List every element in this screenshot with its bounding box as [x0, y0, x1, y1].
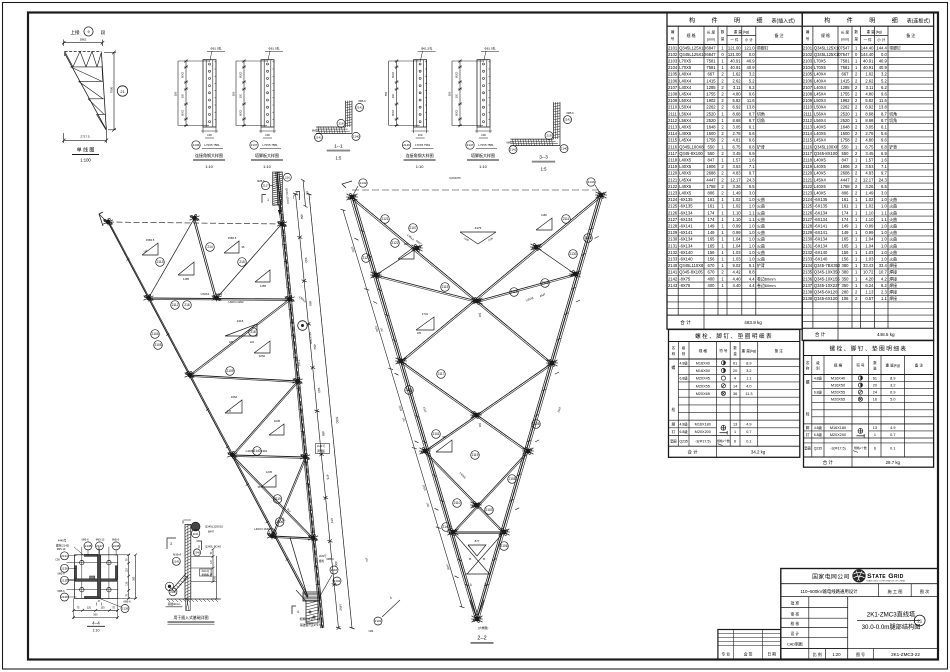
svg-text:3.05: 3.05: [865, 125, 874, 130]
svg-text:2102: 2102: [803, 52, 813, 57]
svg-text:1.6: 1.6: [881, 158, 887, 163]
svg-text:-6X135: -6X135: [679, 204, 693, 209]
svg-text:-6X141: -6X141: [679, 224, 693, 229]
svg-text:218: 218: [338, 122, 343, 126]
svg-text:550: 550: [842, 151, 850, 156]
svg-text:2117: 2117: [668, 151, 678, 156]
svg-text:M20X55: M20X55: [831, 391, 845, 395]
svg-text:847: 847: [708, 158, 716, 163]
svg-text:1.0: 1.0: [881, 230, 887, 235]
svg-text:100: 100: [392, 93, 395, 98]
svg-text:2105: 2105: [803, 72, 813, 77]
svg-text:国家电网公司: 国家电网公司: [812, 572, 850, 580]
svg-text:2126: 2126: [803, 210, 813, 215]
svg-text:2141: 2141: [173, 559, 180, 563]
svg-text:专 业: 专 业: [721, 652, 730, 657]
svg-text:2117: 2117: [262, 184, 269, 188]
svg-text:2101: 2101: [803, 45, 813, 50]
svg-text:1.1: 1.1: [749, 217, 755, 222]
svg-text:6.1: 6.1: [881, 125, 887, 130]
svg-text:2111: 2111: [668, 111, 677, 116]
svg-text:合 计: 合 计: [823, 459, 834, 466]
svg-text:设 计: 设 计: [790, 631, 799, 636]
svg-text:-6X141: -6X141: [814, 224, 828, 229]
svg-text:2117: 2117: [438, 372, 445, 376]
svg-text:1:5: 1:5: [335, 156, 341, 161]
svg-text:火曲: 火曲: [889, 257, 897, 262]
svg-text:2132: 2132: [668, 250, 678, 255]
svg-text:规 格: 规 格: [821, 32, 830, 38]
svg-text:4375: 4375: [475, 226, 482, 230]
svg-text:877: 877: [475, 539, 480, 543]
svg-text:-3(Φ17.5): -3(Φ17.5): [695, 439, 710, 443]
svg-text:2118: 2118: [803, 158, 813, 163]
svg-text:8.68: 8.68: [733, 111, 742, 116]
svg-text:4.40: 4.40: [733, 283, 742, 288]
svg-text:Q345L125X10: Q345L125X10: [679, 45, 706, 50]
svg-text:L45X4: L45X4: [814, 177, 827, 182]
svg-text:1.03: 1.03: [733, 250, 742, 255]
svg-text:8.8: 8.8: [749, 270, 755, 275]
svg-text:用于插入式基础详图: 用于插入式基础详图: [173, 615, 208, 620]
svg-text:M16X50: M16X50: [696, 369, 710, 373]
svg-text:161: 161: [708, 197, 716, 202]
svg-text:2113: 2113: [668, 125, 678, 130]
svg-text:1758: 1758: [706, 138, 716, 143]
svg-text:-6X134: -6X134: [679, 217, 693, 222]
svg-text:Q235: Q235: [814, 446, 822, 450]
svg-text:钉: 钉: [672, 429, 676, 434]
svg-text:4.80: 4.80: [865, 92, 874, 97]
svg-text:2262: 2262: [706, 105, 716, 110]
svg-text:螺栓、脚钉、垫圈明细表: 螺栓、脚钉、垫圈明细表: [829, 344, 907, 352]
svg-text:2142: 2142: [170, 591, 176, 594]
svg-text:180: 180: [404, 242, 409, 246]
svg-text:火曲: 火曲: [889, 204, 897, 209]
svg-text:2126: 2126: [668, 210, 678, 215]
svg-text:1.0: 1.0: [881, 224, 887, 229]
svg-text:6.9: 6.9: [890, 391, 895, 395]
svg-text:M20X200: M20X200: [695, 430, 711, 434]
svg-text:450: 450: [313, 344, 318, 350]
svg-text:2122: 2122: [668, 184, 678, 189]
svg-text:2104: 2104: [151, 332, 158, 336]
svg-text:4.83: 4.83: [865, 171, 874, 176]
svg-text:规 格: 规 格: [834, 363, 843, 368]
svg-text:焊接: 焊接: [889, 290, 897, 295]
svg-text:2120: 2120: [803, 171, 813, 176]
svg-text:切角: 切角: [889, 111, 897, 116]
svg-text:60X3: 60X3: [182, 109, 185, 115]
svg-text:L40X4: L40X4: [814, 78, 827, 83]
svg-text:108: 108: [842, 296, 850, 301]
svg-text:2--2: 2--2: [477, 636, 486, 642]
svg-text:L40X4: L40X4: [814, 85, 827, 90]
svg-text:550: 550: [174, 91, 178, 96]
svg-text:6M5-6: 6M5-6: [506, 141, 514, 145]
svg-text:2140: 2140: [353, 135, 360, 139]
svg-text:1.1: 1.1: [749, 210, 755, 215]
svg-text:火曲: 火曲: [889, 210, 897, 215]
svg-text:130: 130: [100, 606, 105, 609]
svg-text:Q345-10X155: Q345-10X155: [814, 276, 840, 281]
svg-text:9.7: 9.7: [881, 171, 887, 176]
svg-text:L45X4: L45X4: [814, 138, 827, 143]
svg-text:2101: 2101: [432, 432, 439, 436]
svg-text:4445号: 4445号: [58, 539, 67, 543]
svg-text:6847: 6847: [706, 52, 716, 57]
svg-text:火曲: 火曲: [757, 204, 765, 209]
svg-text:20: 20: [873, 384, 877, 388]
svg-text:L50X4: L50X4: [814, 105, 827, 110]
svg-text:1755: 1755: [840, 92, 850, 97]
svg-text:1648: 1648: [840, 125, 850, 130]
svg-text:8.68: 8.68: [733, 118, 742, 123]
svg-text:规格x个数: 规格x个数: [854, 446, 867, 450]
svg-text:级: 级: [816, 360, 820, 365]
svg-text:6847: 6847: [208, 530, 215, 534]
svg-text:2K1-ZMC3直线塔: 2K1-ZMC3直线塔: [867, 611, 916, 619]
svg-text:667: 667: [842, 72, 850, 77]
svg-text:4.8级: 4.8级: [814, 376, 823, 381]
svg-text:2133: 2133: [803, 257, 813, 262]
svg-text:13.8: 13.8: [747, 105, 756, 110]
svg-text:2112: 2112: [668, 118, 678, 123]
svg-text:2127: 2127: [803, 217, 813, 222]
svg-text:4.2: 4.2: [881, 276, 887, 281]
svg-text:(mm): (mm): [707, 38, 715, 42]
svg-text:2143: 2143: [588, 180, 595, 184]
svg-text:2105: 2105: [154, 343, 161, 347]
svg-text:12.17: 12.17: [730, 177, 741, 182]
svg-text:号: 号: [806, 36, 810, 41]
svg-text:5.82: 5.82: [865, 98, 874, 103]
svg-text:2.78: 2.78: [733, 131, 742, 136]
svg-text:6.92: 6.92: [733, 105, 742, 110]
svg-text:1:20: 1:20: [832, 652, 841, 657]
svg-text:6.2: 6.2: [749, 85, 755, 90]
svg-text:225: 225: [417, 332, 422, 335]
svg-text:24.3: 24.3: [879, 177, 888, 182]
svg-text:3862: 3862: [80, 38, 87, 42]
svg-text:2147: 2147: [467, 143, 474, 147]
svg-text:900: 900: [304, 257, 309, 263]
svg-text:编: 编: [806, 29, 810, 34]
svg-text:2112: 2112: [803, 118, 813, 123]
svg-text:6M5-10: 6M5-10: [96, 539, 105, 542]
svg-text:2119: 2119: [274, 497, 281, 501]
svg-text:2140: 2140: [561, 147, 568, 151]
svg-text:2137: 2137: [251, 143, 258, 147]
svg-text:备 注: 备 注: [775, 348, 784, 353]
svg-text:550: 550: [842, 144, 850, 149]
svg-text:数: 数: [854, 29, 858, 34]
svg-text:L45X4: L45X4: [679, 92, 692, 97]
svg-text:448.5 kg: 448.5 kg: [877, 332, 895, 337]
svg-text:100: 100: [207, 133, 212, 137]
svg-text:9: 9: [87, 30, 89, 34]
svg-text:1.0: 1.0: [881, 237, 887, 242]
svg-text:8.7: 8.7: [749, 118, 755, 123]
svg-text:2132: 2132: [803, 250, 813, 255]
svg-text:4.80: 4.80: [865, 138, 874, 143]
svg-text:6.5: 6.5: [749, 184, 755, 189]
svg-text:9.02: 9.02: [733, 263, 742, 268]
svg-text:149: 149: [842, 230, 850, 235]
svg-text:M20X45: M20X45: [696, 377, 710, 381]
svg-text:2111: 2111: [803, 111, 812, 116]
svg-text:165: 165: [842, 243, 850, 248]
svg-text:6.2: 6.2: [881, 283, 887, 288]
svg-text:224: 224: [250, 341, 255, 344]
svg-text:名: 名: [806, 360, 809, 365]
svg-text:6M5-6: 6M5-6: [81, 539, 89, 542]
svg-text:300: 300: [132, 576, 135, 581]
svg-text:Q345L125X10: Q345L125X10: [205, 525, 223, 529]
svg-text:8.9: 8.9: [746, 361, 751, 365]
svg-text:1.0: 1.0: [749, 224, 755, 229]
svg-text:1.04: 1.04: [865, 243, 874, 248]
svg-text:6M5-6: 6M5-6: [312, 128, 320, 132]
svg-text:6.9: 6.9: [881, 151, 887, 156]
svg-text:7547: 7547: [840, 45, 850, 50]
svg-text:Q345-8X105: Q345-8X105: [679, 270, 703, 275]
svg-text:100: 100: [240, 93, 243, 98]
svg-text:备 注: 备 注: [774, 32, 783, 38]
svg-text:1:10: 1:10: [205, 164, 214, 169]
svg-text:2136: 2136: [122, 607, 129, 611]
svg-text:400: 400: [708, 283, 716, 288]
svg-text:21: 21: [120, 90, 124, 94]
svg-text:2101: 2101: [193, 532, 199, 536]
svg-text:火曲: 火曲: [757, 224, 765, 229]
svg-text:螺栓: 螺栓: [319, 559, 325, 563]
svg-text:2128: 2128: [803, 224, 813, 229]
svg-text:Q345L125X10: Q345L125X10: [814, 45, 841, 50]
svg-text:2110: 2110: [668, 105, 678, 110]
svg-text:10.72: 10.72: [863, 270, 874, 275]
svg-text:合 计: 合 计: [687, 449, 698, 456]
svg-text:473: 473: [330, 518, 335, 524]
svg-text:螺栓(2145): 螺栓(2145): [56, 544, 69, 548]
svg-text:1.02: 1.02: [865, 204, 874, 209]
svg-text:2141: 2141: [564, 118, 571, 122]
svg-text:100: 100: [481, 133, 486, 137]
svg-text:1.10: 1.10: [865, 217, 874, 222]
svg-text:图 号: 图 号: [856, 651, 865, 657]
svg-text:1652: 1652: [231, 395, 238, 399]
svg-text:3.53: 3.53: [733, 164, 742, 169]
svg-text:L40X5: L40X5: [814, 158, 827, 163]
svg-text:5.6: 5.6: [881, 131, 887, 136]
svg-text:2116: 2116: [803, 144, 813, 149]
svg-text:400: 400: [708, 276, 716, 281]
svg-text:1.0: 1.0: [881, 243, 887, 248]
svg-text:2x11号: 2x11号: [317, 444, 325, 448]
svg-text:L50X4 2202: L50X4 2202: [228, 300, 244, 304]
svg-text:6.92: 6.92: [865, 105, 874, 110]
svg-text:1035: 1035: [274, 419, 281, 423]
svg-text:1583.5: 1583.5: [146, 238, 155, 242]
svg-text:34.2 kg: 34.2 kg: [751, 450, 766, 455]
svg-text:2142: 2142: [668, 276, 678, 281]
svg-text:L40X5: L40X5: [679, 184, 692, 189]
svg-text:1500: 1500: [840, 131, 850, 136]
svg-text:2.62: 2.62: [865, 78, 874, 83]
svg-text:1.0: 1.0: [749, 230, 755, 235]
svg-text:2104: 2104: [405, 388, 412, 392]
svg-text:-6X134: -6X134: [679, 237, 693, 242]
svg-text:2131: 2131: [668, 243, 678, 248]
svg-text:1:10: 1:10: [93, 628, 100, 632]
svg-text:2108: 2108: [803, 92, 813, 97]
svg-text:批 准: 批 准: [790, 601, 799, 606]
svg-text:2111: 2111: [563, 217, 570, 221]
svg-text:130: 130: [126, 581, 129, 586]
svg-text:165: 165: [842, 237, 850, 242]
svg-text:3.45: 3.45: [865, 151, 874, 156]
svg-text:L56X4: L56X4: [679, 111, 692, 116]
svg-text:2115: 2115: [442, 285, 449, 289]
svg-text:2110: 2110: [454, 501, 461, 505]
svg-text:500: 500: [93, 614, 98, 617]
svg-text:4.4: 4.4: [749, 276, 755, 281]
svg-text:钉: 钉: [806, 432, 810, 437]
svg-text:切角: 切角: [757, 118, 765, 123]
svg-text:4.83: 4.83: [733, 171, 742, 176]
svg-text:2115: 2115: [668, 138, 678, 143]
svg-text:2113: 2113: [157, 260, 164, 264]
svg-text:61: 61: [873, 377, 877, 381]
svg-text:Q345-10X350: Q345-10X350: [814, 270, 840, 275]
svg-text:Φ61.5孔: Φ61.5孔: [210, 46, 221, 51]
svg-text:2135: 2135: [113, 544, 120, 548]
svg-text:450: 450: [300, 214, 305, 220]
svg-text:数: 数: [873, 360, 877, 365]
svg-text:火曲: 火曲: [757, 197, 765, 202]
svg-text:218: 218: [250, 330, 256, 334]
svg-text:State Grid: State Grid: [867, 573, 904, 580]
svg-text:火曲: 火曲: [889, 243, 897, 248]
svg-text:2115: 2115: [803, 138, 813, 143]
svg-text:连接角钢大样图: 连接角钢大样图: [195, 152, 223, 158]
svg-text:重 量(kg): 重 量(kg): [742, 348, 757, 353]
svg-text:0.57: 0.57: [865, 296, 874, 301]
svg-text:火曲: 火曲: [757, 250, 765, 255]
svg-text:121.00: 121.00: [728, 52, 741, 57]
svg-text:380: 380: [842, 263, 850, 268]
svg-text:塔脚板详见⑦ 26.7: 塔脚板详见⑦ 26.7: [299, 617, 322, 621]
svg-text:2101: 2101: [375, 619, 382, 623]
svg-text:2139: 2139: [803, 296, 813, 301]
svg-text:脚: 脚: [806, 425, 810, 430]
svg-text:1.57: 1.57: [733, 158, 742, 163]
svg-text:垫圈: 垫圈: [670, 438, 676, 443]
svg-text:225: 225: [229, 341, 234, 344]
svg-text:6: 6: [734, 439, 736, 443]
svg-text:8.68: 8.68: [865, 118, 874, 123]
svg-text:Q345-8X100: Q345-8X100: [814, 151, 838, 156]
svg-text:178: 178: [227, 410, 232, 413]
svg-text:2109: 2109: [226, 369, 233, 373]
svg-text:2520: 2520: [706, 118, 716, 123]
svg-text:475: 475: [325, 474, 330, 480]
svg-text:4.80: 4.80: [733, 92, 742, 97]
svg-text:-3(Φ17.5): -3(Φ17.5): [830, 446, 845, 450]
svg-text:L56X4: L56X4: [814, 118, 827, 123]
svg-text:1.0: 1.0: [749, 243, 755, 248]
svg-text:编: 编: [671, 29, 675, 34]
svg-text:0.7: 0.7: [746, 430, 751, 434]
svg-text:12.17: 12.17: [863, 177, 874, 182]
svg-text:量: 量: [721, 36, 725, 41]
svg-text:1.0: 1.0: [749, 237, 755, 242]
svg-text:2109: 2109: [803, 98, 813, 103]
svg-text:156: 156: [842, 257, 850, 262]
svg-text:L70X5 7581: L70X5 7581: [204, 143, 220, 147]
svg-text:5.2: 5.2: [881, 78, 887, 83]
svg-text:1.0: 1.0: [881, 257, 887, 262]
svg-text:6847: 6847: [706, 45, 716, 50]
svg-text:29.7 kg: 29.7 kg: [886, 460, 901, 465]
svg-text:卷边60mm: 卷边60mm: [757, 276, 776, 281]
svg-text:Q345-7BX350: Q345-7BX350: [814, 263, 841, 268]
svg-text:7.1: 7.1: [749, 164, 755, 169]
svg-text:1185: 1185: [260, 284, 266, 288]
svg-text:110~500kV输电线路通用设计: 110~500kV输电线路通用设计: [800, 588, 858, 595]
svg-text:焊接: 焊接: [889, 296, 897, 301]
svg-text:7000: 7000: [335, 416, 340, 424]
svg-text:11.6: 11.6: [747, 98, 755, 103]
svg-text:2107: 2107: [409, 226, 416, 230]
svg-text:6.8级: 6.8级: [680, 376, 689, 381]
svg-text:L56X4: L56X4: [814, 111, 827, 116]
svg-text:C90: C90: [55, 559, 60, 562]
svg-text:6.8级: 6.8级: [814, 432, 823, 437]
svg-text:1906: 1906: [706, 164, 716, 169]
svg-text:构: 构: [824, 16, 830, 24]
svg-text:符 号: 符 号: [856, 363, 865, 368]
svg-text:550: 550: [448, 91, 452, 96]
svg-text:1.0: 1.0: [749, 204, 755, 209]
svg-text:基础根开见2717.5: 基础根开见2717.5: [300, 623, 323, 627]
svg-text:6.1: 6.1: [749, 125, 755, 130]
svg-text:1452: 1452: [338, 604, 343, 611]
svg-text:L40X4: L40X4: [814, 72, 827, 77]
svg-text:1.04: 1.04: [733, 237, 742, 242]
svg-text:2122: 2122: [391, 241, 398, 245]
svg-text:550: 550: [384, 91, 388, 96]
svg-text:2103: 2103: [803, 59, 813, 64]
svg-text:5.82: 5.82: [733, 98, 742, 103]
svg-text:4.42: 4.42: [733, 270, 742, 275]
svg-text:N24: N24: [369, 629, 374, 633]
svg-text:L40X5: L40X5: [814, 191, 827, 196]
svg-text:2608: 2608: [840, 171, 850, 176]
svg-text:2141: 2141: [668, 270, 678, 275]
svg-text:1902: 1902: [706, 98, 716, 103]
svg-text:0.99: 0.99: [733, 224, 742, 229]
svg-text:M16X40: M16X40: [831, 377, 845, 381]
svg-text:9.7: 9.7: [749, 171, 755, 176]
svg-text:3.2: 3.2: [890, 384, 895, 388]
svg-text:450: 450: [321, 431, 326, 437]
svg-text:1.0: 1.0: [881, 197, 887, 202]
svg-text:铲背: 铲背: [757, 144, 765, 149]
svg-text:2134: 2134: [61, 554, 68, 558]
svg-text:7581: 7581: [706, 59, 716, 64]
svg-text:6M5-6: 6M5-6: [257, 179, 265, 183]
